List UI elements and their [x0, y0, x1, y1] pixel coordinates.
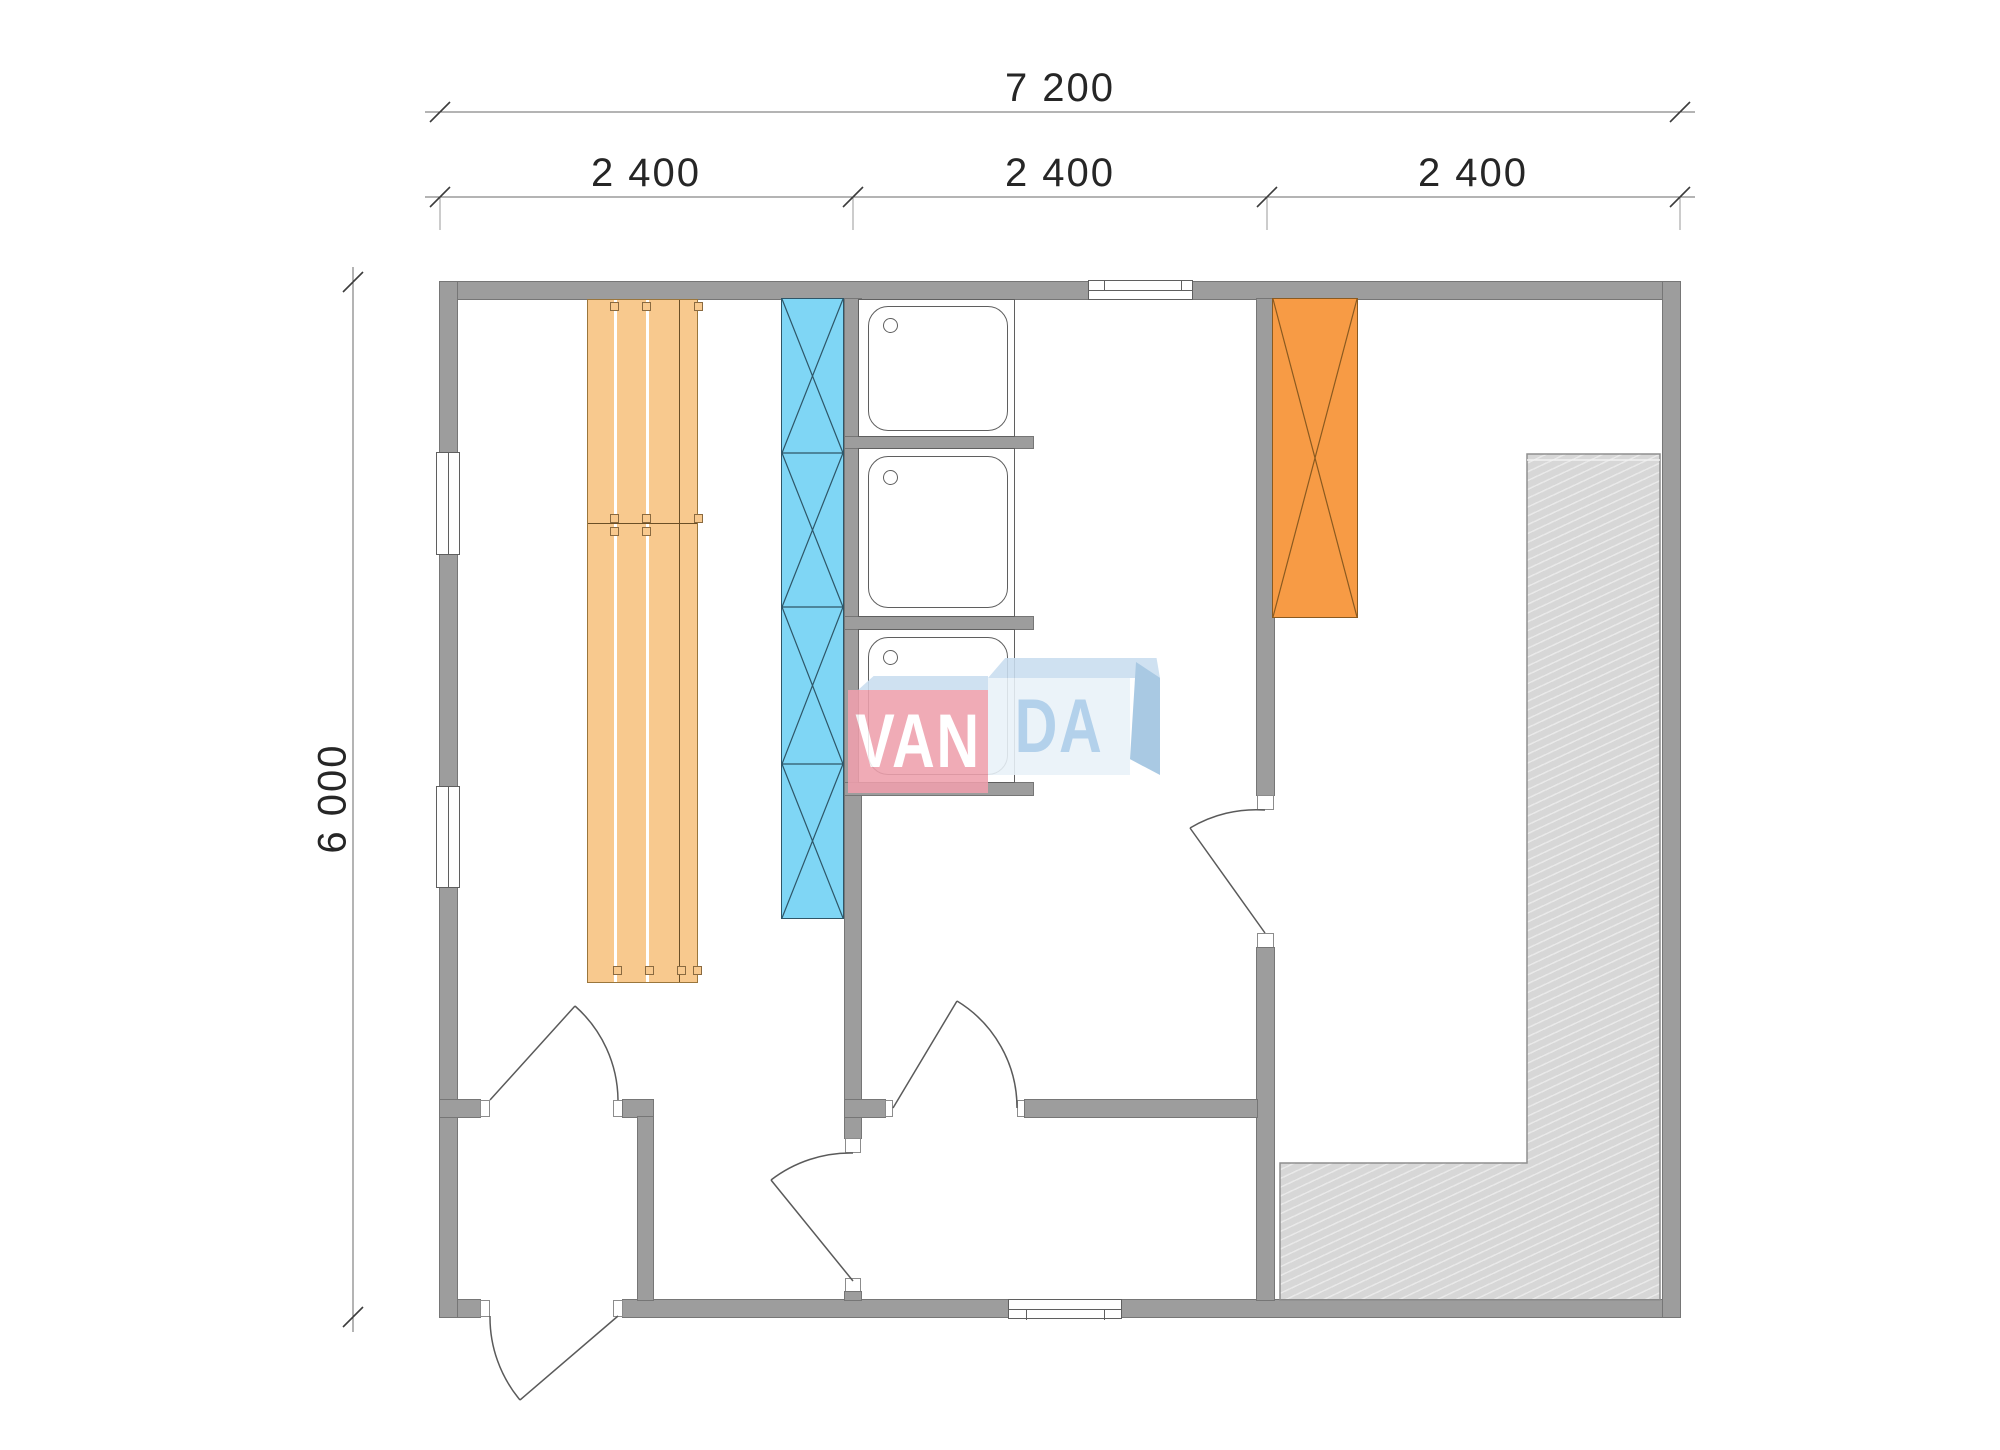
left-lower-window — [436, 786, 460, 888]
top-window — [1088, 280, 1193, 300]
logo-text-right: DA — [1004, 678, 1115, 775]
window-mullion-stub — [1026, 1310, 1027, 1320]
sauna-strip-door-arc — [771, 1153, 853, 1180]
rest-room-door-leaf — [1190, 828, 1265, 933]
rest-room-door-arc — [1190, 810, 1265, 828]
window-mullion-stub — [1181, 281, 1182, 291]
deck-outline — [1280, 454, 1660, 1300]
left-upper-window — [436, 452, 460, 555]
wardrobe-cross-hatch — [1273, 299, 1357, 617]
sauna-strip-door-leaf — [771, 1180, 853, 1281]
window-mullion — [448, 453, 449, 554]
logo-blue-front-face: DA — [988, 678, 1130, 775]
heater-cross-hatch — [782, 299, 843, 918]
window-mullion-stub — [1104, 1310, 1105, 1320]
logo-pink-front-face: VAN — [848, 690, 988, 793]
doors-layer — [490, 810, 1265, 1400]
exterior-entrance-door-leaf — [520, 1316, 618, 1400]
logo-text-left: VAN — [863, 690, 972, 793]
vestibule-interior-door-arc — [575, 1006, 618, 1100]
exterior-entrance-door-arc — [490, 1316, 520, 1400]
window-mullion — [448, 787, 449, 887]
shower-room-door-arc — [957, 1001, 1017, 1108]
logo-pink-top-face — [858, 676, 988, 690]
shower-room-door-leaf — [893, 1001, 957, 1108]
vestibule-interior-door-leaf — [490, 1006, 575, 1100]
logo-blue-top-face — [988, 658, 1160, 678]
window-mullion-stub — [1104, 281, 1105, 291]
floor-plan-canvas: 7 200 2 400 2 400 2 400 6 000 — [0, 0, 2000, 1450]
bottom-window — [1008, 1299, 1122, 1319]
